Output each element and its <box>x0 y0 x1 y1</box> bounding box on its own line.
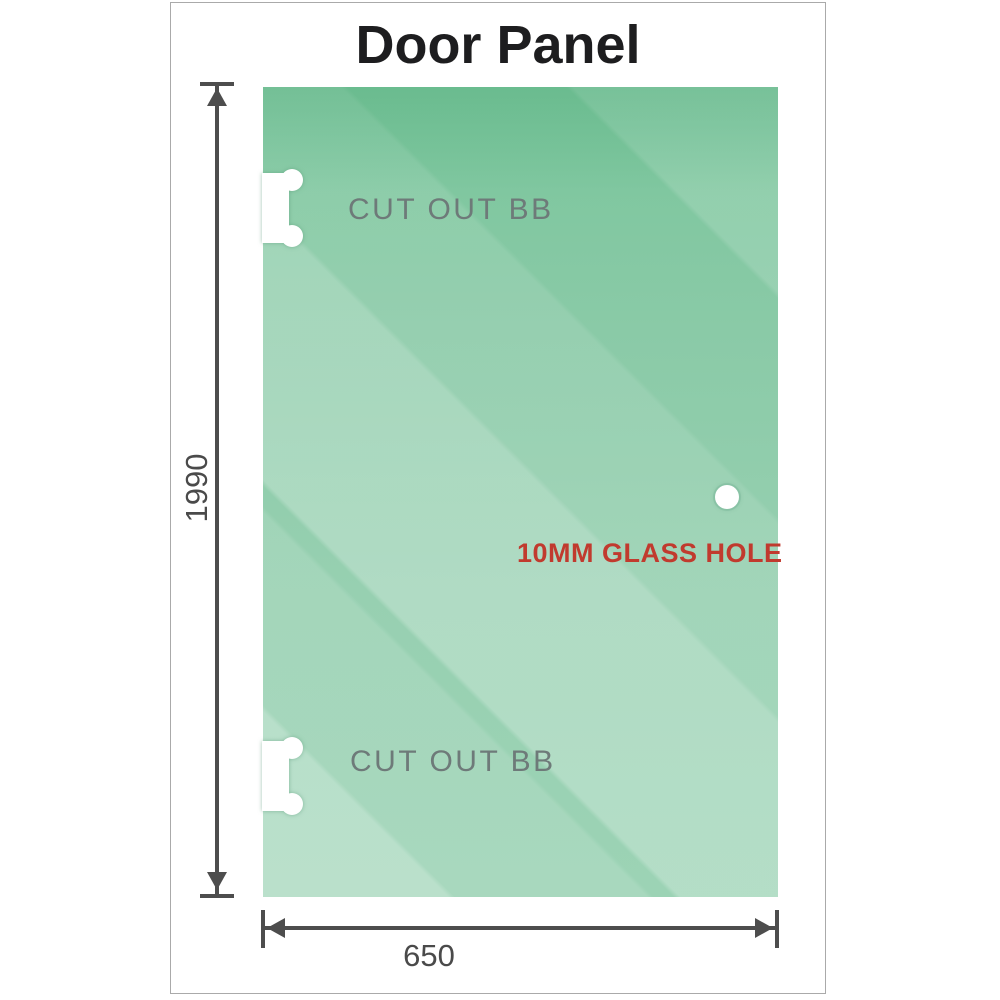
cutout-bottom-label: CUT OUT BB <box>350 745 556 779</box>
arrow-left-icon <box>267 918 285 938</box>
arrow-down-icon <box>207 872 227 890</box>
glass-hole-label: 10MM GLASS HOLE <box>517 538 783 569</box>
hinge-cutout-bottom-icon <box>262 735 308 817</box>
cutout-top-label: CUT OUT BB <box>348 193 554 227</box>
horizontal-dim-right-tick <box>775 910 779 948</box>
page-title: Door Panel <box>170 14 826 76</box>
vertical-dim-bottom-cap <box>200 894 234 898</box>
vertical-dim-line <box>215 86 219 894</box>
width-dimension-label: 650 <box>398 938 460 974</box>
height-dimension-label: 1990 <box>179 454 215 523</box>
arrow-up-icon <box>207 88 227 106</box>
glass-hole-icon <box>715 485 739 509</box>
arrow-right-icon <box>755 918 773 938</box>
hinge-cutout-top-icon <box>262 167 308 249</box>
horizontal-dim-line <box>265 926 775 930</box>
diagram-canvas: Door Panel CUT OUT BB CUT OUT BB 10MM GL… <box>0 0 1000 1000</box>
